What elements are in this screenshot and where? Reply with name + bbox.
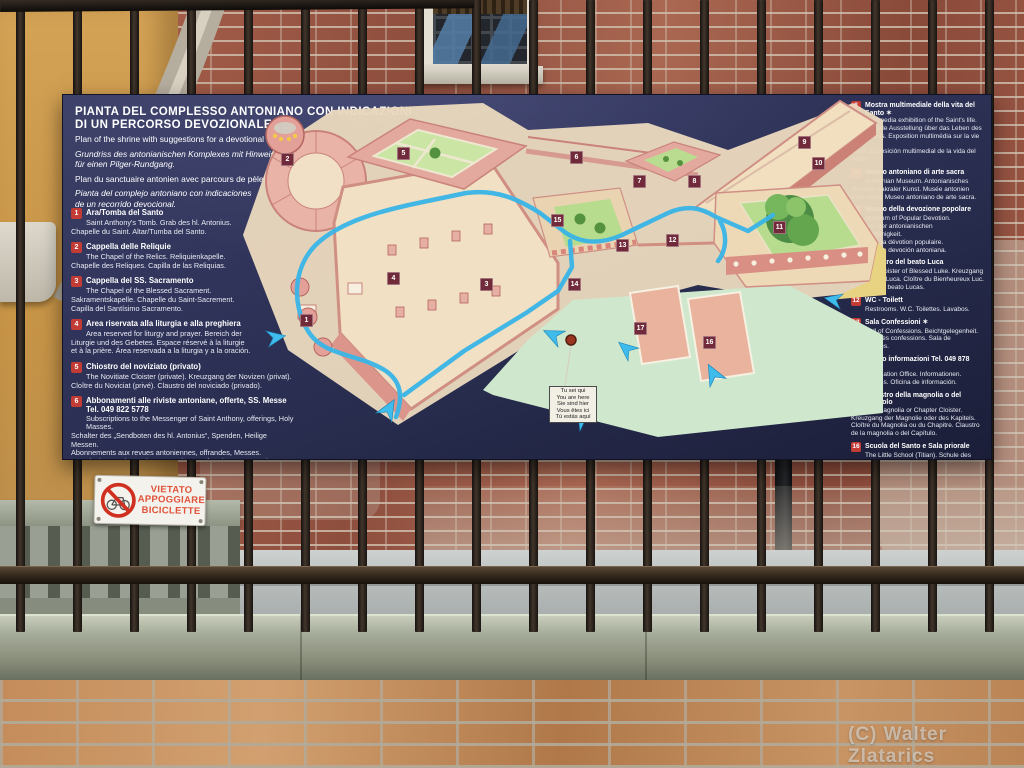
balustrade-posts <box>0 526 240 598</box>
legend-number-badge: 6 <box>71 396 82 407</box>
legend-item-title: Chiostro del noviziato (privato) <box>86 362 201 372</box>
no-bicycles-sign: VIETATOAPPOGGIAREBICICLETTE <box>93 475 206 526</box>
map-marker-8: 8 <box>688 175 701 188</box>
legend-number-badge: 2 <box>71 242 82 253</box>
stone-corbel <box>0 222 56 302</box>
no-bicycles-icon <box>99 478 138 521</box>
legend-number-badge: 5 <box>71 362 82 373</box>
photo-watermark: (C) Walter Zlatarics <box>848 724 1024 768</box>
legend-number-badge: 1 <box>71 208 82 219</box>
map-marker-10: 10 <box>812 157 825 170</box>
map-marker-14: 14 <box>568 278 581 291</box>
legend-item-title: Ara/Tomba del Santo <box>86 208 163 218</box>
map-marker-17: 17 <box>634 322 647 335</box>
map-marker-13: 13 <box>616 239 629 252</box>
legend-number-badge: 3 <box>71 276 82 287</box>
photo-of-map-sign: (C) Walter Zlatarics PIANTA DEL COMPLESS… <box>0 0 1024 768</box>
map-marker-4: 4 <box>387 272 400 285</box>
isometric-map: Tu sei quiYou are hereSie sind hierVous … <box>228 95 888 455</box>
legend-number-badge: 4 <box>71 319 82 330</box>
fence-bar <box>16 0 25 632</box>
legend-item-title: Cappella del SS. Sacramento <box>86 276 193 286</box>
information-sign-board: PIANTA DEL COMPLESSO ANTONIANO CON INDIC… <box>62 94 992 460</box>
map-marker-16: 16 <box>703 336 716 349</box>
map-marker-9: 9 <box>798 136 811 149</box>
map-marker-6: 6 <box>570 151 583 164</box>
map-marker-3: 3 <box>480 278 493 291</box>
legend-item-title: Area riservata alla liturgia e alla preg… <box>86 319 241 329</box>
map-marker-5: 5 <box>397 147 410 160</box>
map-marker-1: 1 <box>300 314 313 327</box>
no-bicycles-text: VIETATOAPPOGGIAREBICICLETTE <box>137 484 205 517</box>
legend-item-title: Cappella delle Reliquie <box>86 242 171 252</box>
map-marker-15: 15 <box>551 214 564 227</box>
map-marker-11: 11 <box>773 221 786 234</box>
fence-mid-rail <box>0 566 1024 584</box>
you-are-here-label: Tu sei quiYou are hereSie sind hierVous … <box>549 386 597 423</box>
map-marker-12: 12 <box>666 234 679 247</box>
map-marker-2: 2 <box>281 153 294 166</box>
map-marker-7: 7 <box>633 175 646 188</box>
